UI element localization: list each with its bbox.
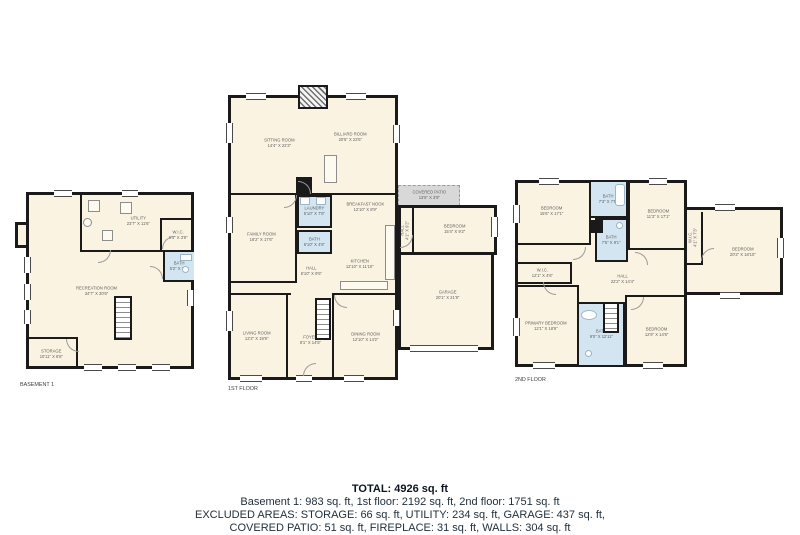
bathtub-icon	[615, 184, 625, 206]
room-label: BREAKFAST NOOK 12'10" X 8'9"	[346, 202, 384, 213]
room-name: BATH	[602, 235, 621, 240]
floor-areas-line: Basement 1: 983 sq. ft, 1st floor: 2192 …	[0, 496, 800, 509]
room-name: HALL	[611, 274, 635, 279]
washer-icon	[300, 197, 310, 205]
room-billiard: BILLIARD ROOM 20'5" X 22'5"	[310, 127, 390, 147]
room-dims: 12'1" X 18'6"	[525, 326, 566, 331]
room-label: BEDROOM 15'4" X 9'2"	[444, 224, 465, 235]
sink-icon	[180, 254, 192, 261]
room-name: HALL	[300, 266, 321, 271]
room-bath-first: BATH 6'10" X 4'6"	[297, 230, 332, 254]
window	[240, 375, 262, 382]
room-sitting: SITTING ROOM 14'4" X 22'3"	[240, 133, 318, 153]
room-label: COVERED PATIO 13'5" X 3'9"	[412, 190, 446, 201]
garage-door	[410, 345, 478, 352]
room-dims: 6'10" X 4'6"	[304, 242, 325, 247]
floorplan-second: BEDROOM 15'6" X 17'1" BATH 7'3" X 7'5" B…	[515, 170, 800, 385]
room-label: W.I.C. 4'1" X 7'3"	[688, 228, 699, 247]
window	[513, 318, 520, 336]
room-label: PRIMARY BEDROOM 12'1" X 18'6"	[525, 321, 566, 332]
utility-appliance	[88, 200, 100, 212]
room-name: BREAKFAST NOOK	[346, 202, 384, 207]
room-label: BEDROOM 15'6" X 17'1"	[540, 206, 564, 217]
room-label: LAUNDRY 5'10" X 7'6"	[304, 206, 325, 217]
window	[777, 238, 784, 258]
room-dims: 34'7" X 30'6"	[75, 291, 116, 296]
room-dims: 12'1" X 4'6"	[532, 273, 553, 278]
room-dims: 20'2" X 18'10"	[730, 252, 756, 257]
room-bedroom-tl: BEDROOM 15'6" X 17'1"	[515, 180, 591, 245]
room-label: STORAGE 10'11" X 6'6"	[39, 349, 62, 360]
room-dims: 12'10" X 8'9"	[346, 207, 384, 212]
room-label: GARAGE 20'1" X 21'9"	[436, 290, 460, 301]
room-dims: 12'10" X 11'10"	[346, 264, 374, 269]
room-dims: 9'0" X 12'11"	[589, 335, 612, 340]
room-breakfast-nook: BREAKFAST NOOK 12'10" X 8'9"	[334, 197, 396, 217]
excluded-areas-line-1: EXCLUDED AREAS: STORAGE: 66 sq. ft, UTIL…	[0, 509, 800, 522]
floorplan-basement: UTILITY 23'7" X 11'6" W.I.C. 6'1" X 3'9"…	[26, 192, 241, 402]
toilet-icon	[182, 266, 189, 273]
room-name: PRIMARY BEDROOM	[525, 321, 566, 326]
room-kitchen: KITCHEN 12'10" X 11'10"	[328, 255, 392, 273]
room-name: BEDROOM	[444, 224, 465, 229]
window	[24, 257, 31, 273]
fireplace	[589, 220, 603, 233]
toilet-icon	[585, 350, 592, 357]
room-name: KITCHEN	[346, 259, 374, 264]
room-name: BEDROOM	[647, 209, 670, 214]
window	[226, 123, 233, 143]
room-living: LIVING ROOM 12'2" X 19'9"	[228, 293, 288, 380]
window	[393, 310, 400, 326]
floor-label: BASEMENT 1	[20, 381, 54, 387]
window	[344, 375, 364, 382]
room-primary-bedroom: PRIMARY BEDROOM 12'1" X 18'6"	[515, 285, 579, 365]
stairs	[603, 302, 619, 333]
floor-label: 1ST FLOOR	[228, 385, 258, 391]
room-name: BILLIARD ROOM	[334, 132, 367, 137]
room-name: W.I.C.	[532, 268, 553, 273]
window	[226, 311, 233, 331]
window	[84, 364, 102, 371]
room-label: BATH 7'5" X 9'1"	[602, 235, 621, 246]
room-dims: 20'1" X 21'9"	[436, 295, 460, 300]
room-dims: 6'10" X 9'5"	[300, 271, 321, 276]
room-label: UTILITY 23'7" X 11'6"	[126, 216, 149, 227]
window	[54, 190, 72, 197]
window	[643, 362, 663, 369]
window	[491, 217, 498, 237]
room-name: UTILITY	[126, 216, 149, 221]
chimney-hatch	[298, 85, 328, 109]
counter	[324, 155, 337, 183]
room-covered-patio: COVERED PATIO 13'5" X 3'9"	[398, 185, 460, 206]
window	[122, 190, 138, 197]
kitchen-counter	[340, 281, 388, 290]
stairs	[315, 298, 331, 340]
window	[539, 178, 559, 185]
room-label: LIVING ROOM 12'2" X 19'9"	[243, 331, 271, 342]
area-summary: TOTAL: 4926 sq. ft Basement 1: 983 sq. f…	[0, 483, 800, 535]
room-dims: 8'1" X 14'5"	[299, 340, 320, 345]
floorplan-first: COVERED PATIO 13'5" X 3'9" SITTING ROOM …	[228, 85, 513, 400]
room-label: HALL 22'2" X 14'4"	[611, 274, 635, 285]
room-name: GARAGE	[436, 290, 460, 295]
room-dims: 20'5" X 22'5"	[334, 137, 367, 142]
window	[346, 93, 366, 100]
room-dims: 12'9" X 14'6"	[645, 332, 669, 337]
room-dims: 10'11" X 6'6"	[39, 354, 62, 359]
room-label: BEDROOM 12'9" X 14'6"	[645, 327, 669, 338]
room-dims: 5'10" X 7'6"	[304, 212, 325, 217]
window	[246, 93, 266, 100]
window	[393, 125, 400, 143]
floor-label: 2ND FLOOR	[515, 376, 546, 382]
room-label: KITCHEN 12'10" X 11'10"	[346, 259, 374, 270]
room-dims: 7'5" X 9'1"	[602, 240, 621, 245]
room-wic-second: W.I.C. 12'1" X 4'6"	[515, 262, 572, 284]
utility-appliance	[102, 230, 113, 241]
room-garage: GARAGE 20'1" X 21'9"	[418, 285, 478, 305]
window	[513, 205, 520, 223]
room-dims: 12'2" X 19'9"	[243, 337, 271, 342]
room-bedroom-ext: BEDROOM 20'2" X 18'10"	[707, 242, 779, 262]
room-label: W.I.C. 12'1" X 4'6"	[532, 268, 553, 279]
room-name: W.I.C.	[169, 230, 188, 235]
room-dims: 23'7" X 11'6"	[126, 221, 149, 226]
room-label: FAMILY ROOM 16'2" X 17'6"	[247, 232, 276, 243]
utility-appliance	[120, 202, 132, 214]
window	[24, 310, 31, 324]
window	[226, 217, 233, 233]
room-name: BATH	[304, 237, 325, 242]
room-dims: 14'4" X 22'3"	[264, 143, 295, 148]
room-label: BATH 6'10" X 4'6"	[304, 237, 325, 248]
room-bedroom-first: BEDROOM 15'4" X 9'2"	[416, 217, 494, 241]
utility-tank	[83, 218, 92, 227]
room-dims: 15'4" X 9'2"	[444, 229, 465, 234]
window	[715, 204, 735, 211]
room-hall-second: HALL 22'2" X 14'4"	[595, 270, 651, 288]
room-dims: 11'3" X 17'1"	[647, 214, 670, 219]
room-dims: 4'1" X 7'3"	[694, 228, 699, 247]
room-name: FAMILY ROOM	[247, 232, 276, 237]
room-bedroom-tr: BEDROOM 11'3" X 17'1"	[628, 180, 687, 250]
stairs	[114, 296, 132, 340]
window	[533, 362, 555, 369]
window	[152, 364, 170, 371]
window	[118, 364, 136, 371]
window	[187, 290, 194, 306]
room-label: HALL 6'10" X 9'5"	[300, 266, 321, 277]
room-label: BEDROOM 20'2" X 18'10"	[730, 247, 756, 258]
window	[720, 292, 740, 299]
window	[649, 178, 667, 185]
total-area: TOTAL: 4926 sq. ft	[0, 483, 800, 496]
room-label: BEDROOM 11'3" X 17'1"	[647, 209, 670, 220]
toilet-icon	[616, 222, 623, 229]
room-name: STORAGE	[39, 349, 62, 354]
room-dims: 16'2" X 17'6"	[247, 237, 276, 242]
room-name: SITTING ROOM	[264, 138, 295, 143]
room-label: BILLIARD ROOM 20'5" X 22'5"	[334, 132, 367, 143]
room-dims: 15'6" X 17'1"	[540, 212, 564, 217]
room-name: RECREATION ROOM	[75, 286, 116, 291]
room-name: BEDROOM	[730, 247, 756, 252]
room-label: DINING ROOM 12'10" X 14'2"	[352, 332, 381, 343]
room-label: RECREATION ROOM 34'7" X 30'6"	[75, 286, 116, 297]
room-dims: 22'2" X 14'4"	[611, 279, 635, 284]
room-name: BEDROOM	[645, 327, 669, 332]
window	[24, 284, 31, 300]
dryer-icon	[316, 197, 326, 205]
room-hall-first: HALL 6'10" X 9'5"	[286, 263, 336, 279]
room-dims: 12'10" X 14'2"	[352, 338, 381, 343]
sink-icon	[581, 310, 597, 320]
excluded-areas-line-2: COVERED PATIO: 51 sq. ft, FIREPLACE: 31 …	[0, 522, 800, 535]
room-dims: 13'5" X 3'9"	[412, 196, 446, 201]
window	[296, 375, 312, 382]
room-label: SITTING ROOM 14'4" X 22'3"	[264, 138, 295, 149]
